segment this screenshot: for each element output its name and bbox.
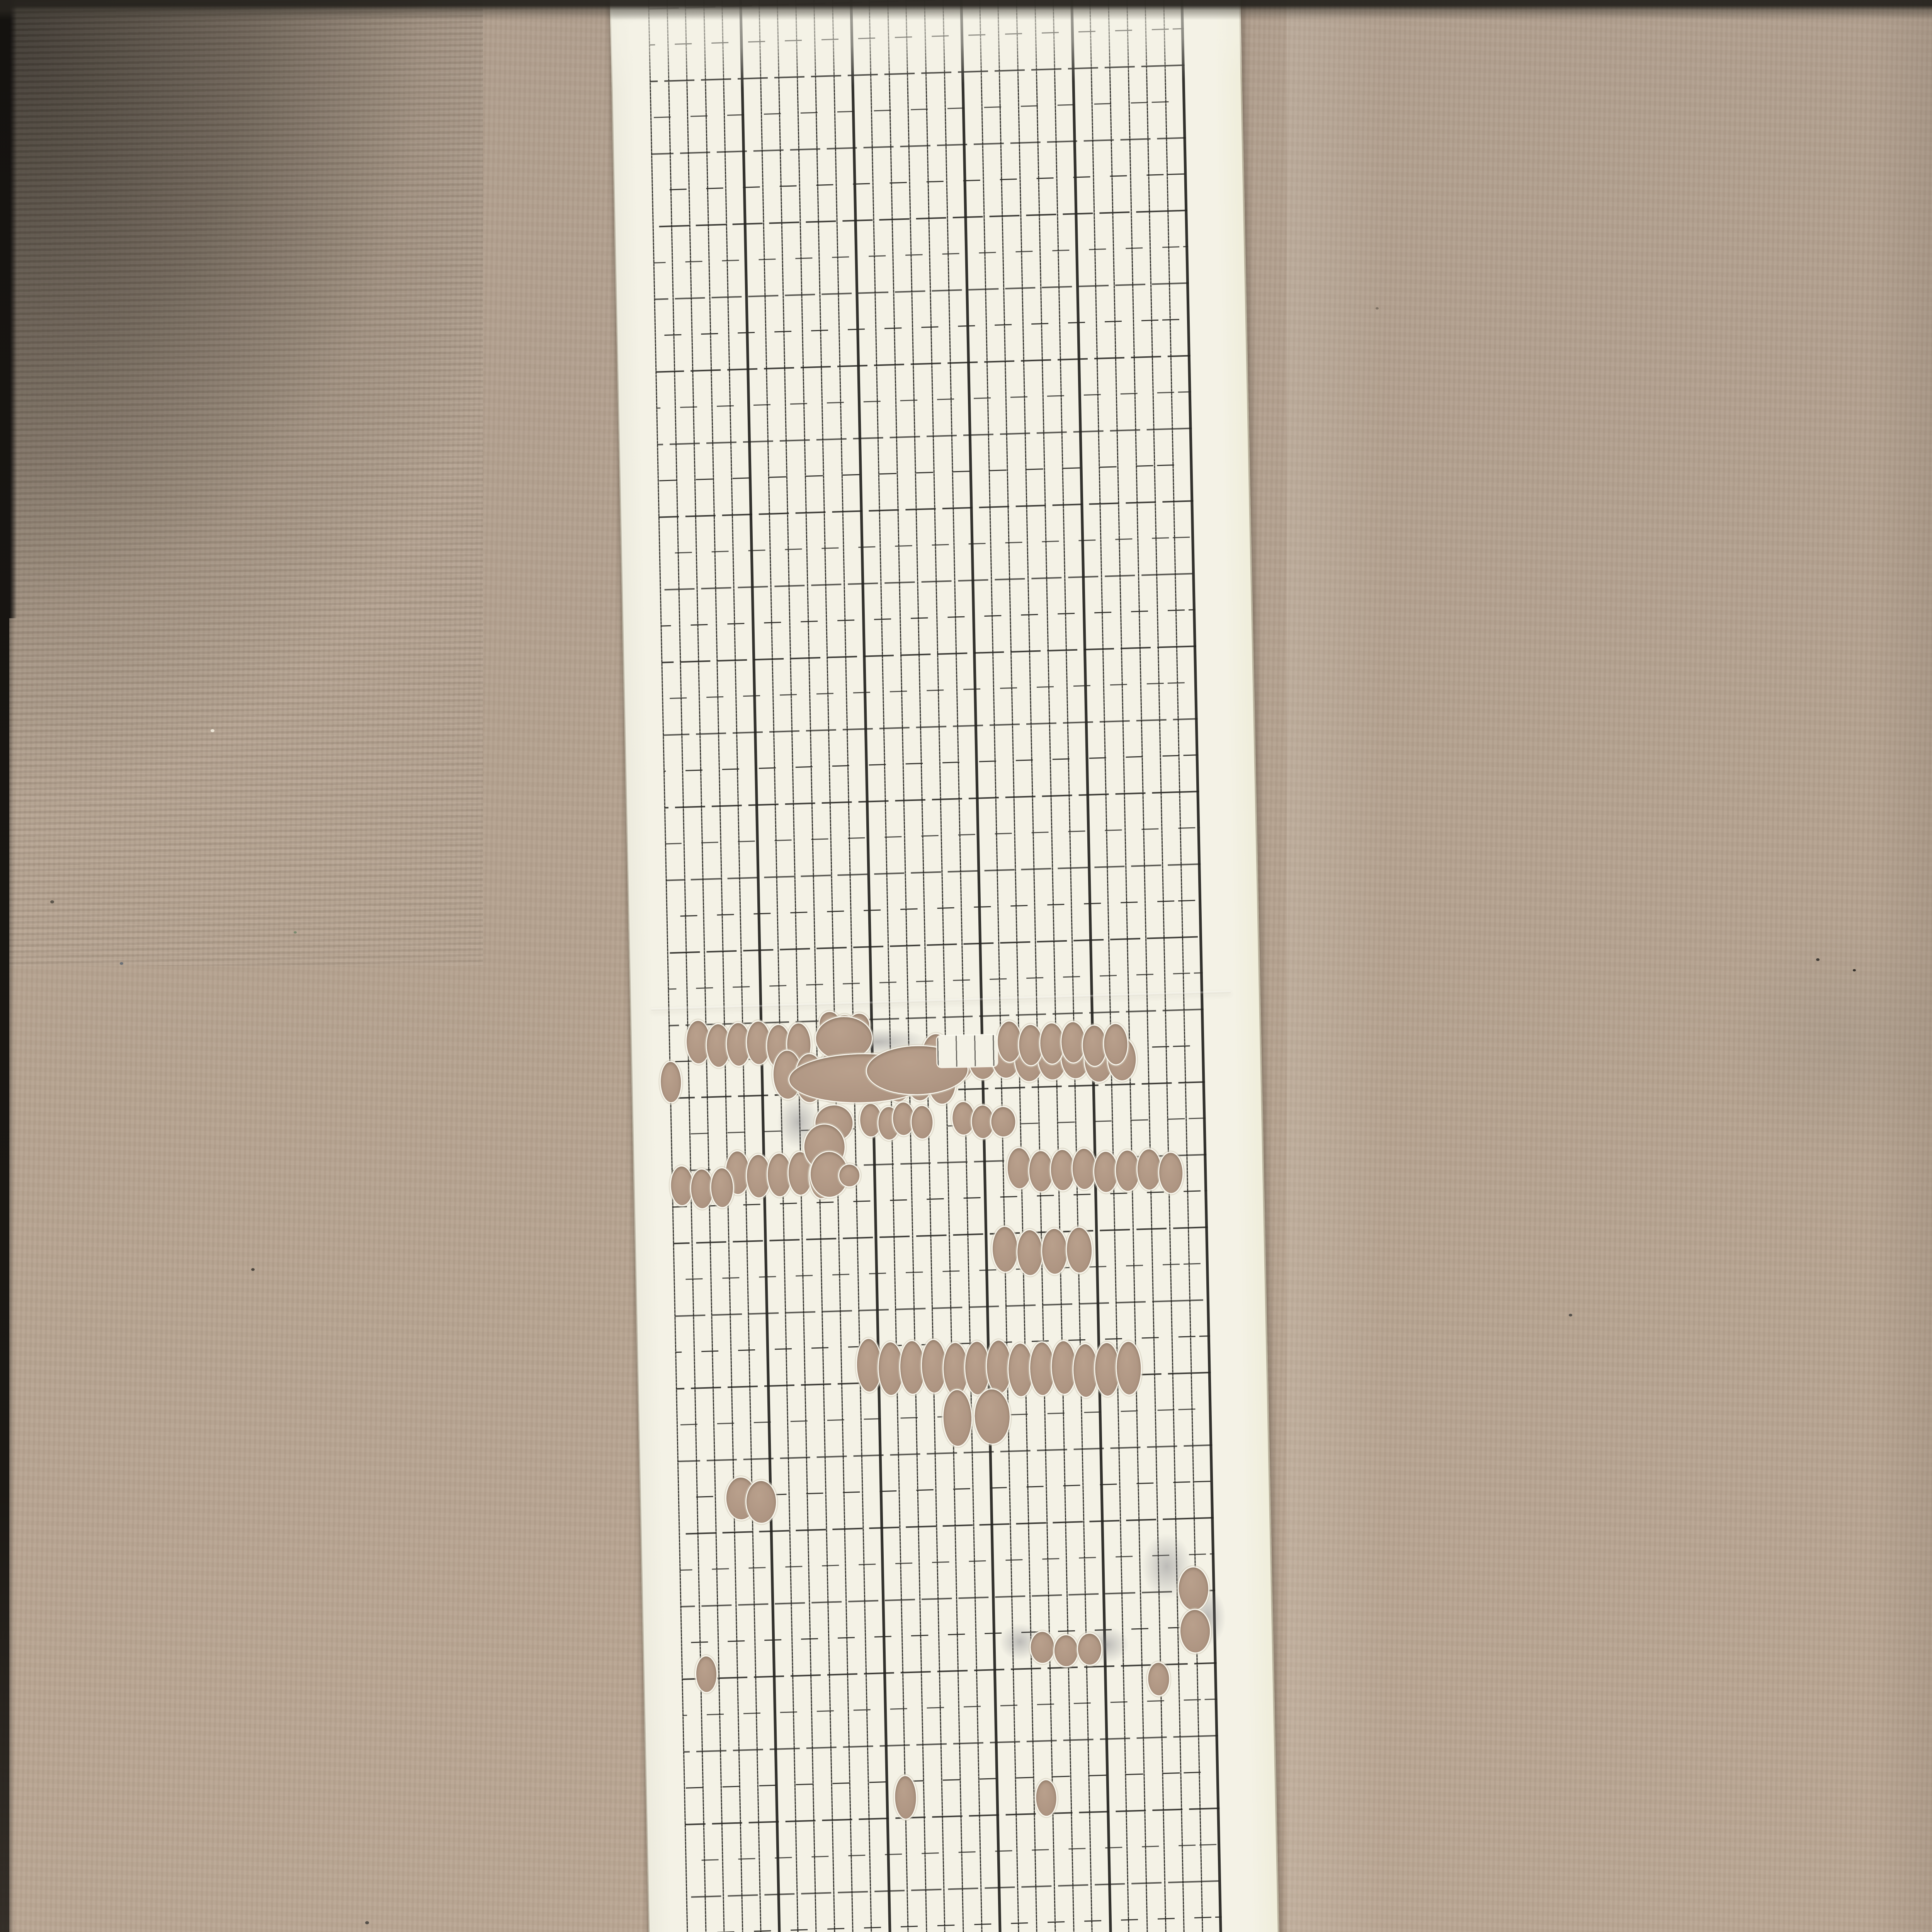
background-shadow-topleft <box>0 0 483 966</box>
paper-strip: DACE1F1G1A1C2D2E2F2G2A2C3E3###### <box>610 0 1295 1932</box>
right-edge-shading <box>1869 0 1932 1932</box>
speck <box>365 1921 369 1924</box>
scan-black-edge <box>0 0 9 1932</box>
scanner-edge-top <box>0 0 1932 20</box>
speck <box>211 729 214 732</box>
speck <box>50 900 54 903</box>
cardboard-streaks <box>0 0 483 966</box>
background-highlight <box>1287 0 1387 1932</box>
note-letter-row: DACE1F1G1A1C2D2E2F2G2A2C3E3###### <box>610 0 1295 1932</box>
scanned-music-strip-scene: DACE1F1G1A1C2D2E2F2G2A2C3E3###### <box>0 0 1932 1932</box>
